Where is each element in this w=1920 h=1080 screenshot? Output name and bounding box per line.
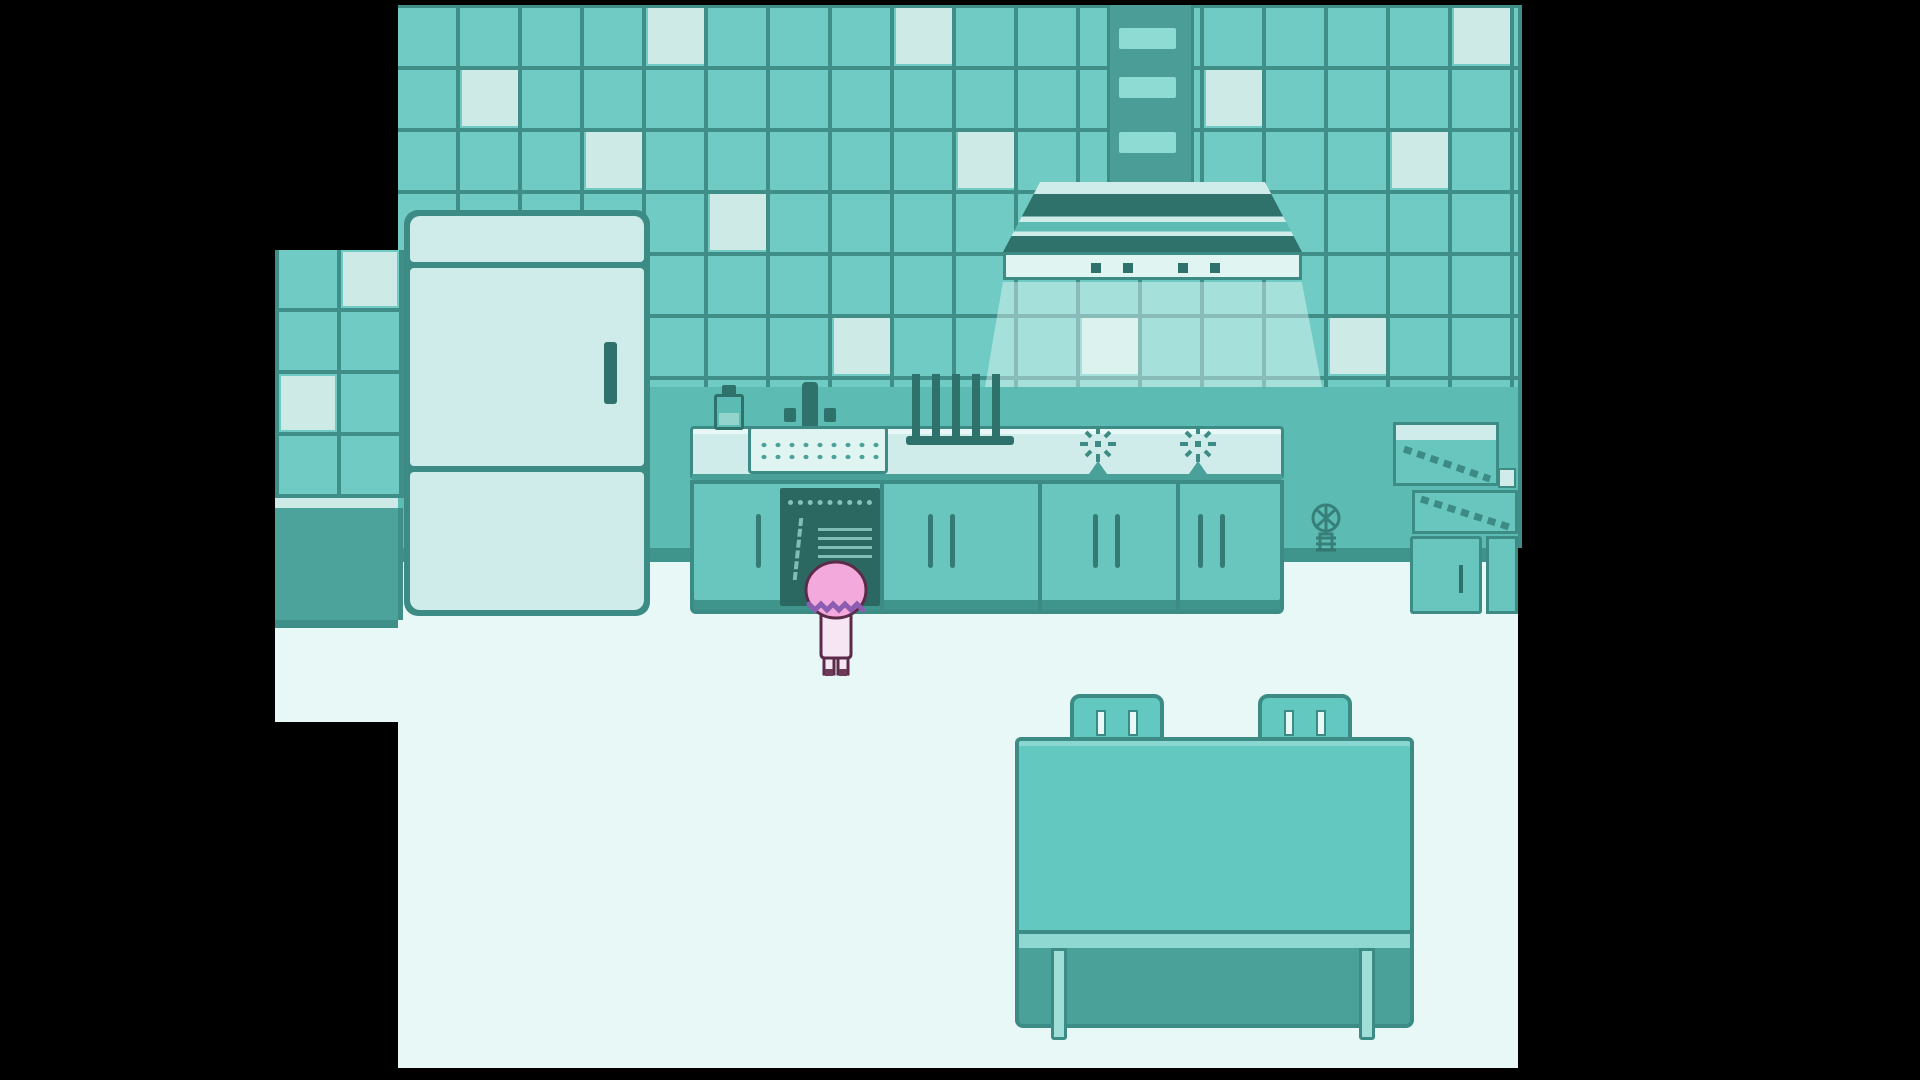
wall-tile-light [958,132,1014,188]
sink-drainboard [757,439,879,461]
cabinet-handle [1459,565,1463,593]
cabinet-handle [1198,514,1203,568]
wall-tile-light [343,252,397,306]
refrigerator-top [410,216,644,262]
storage-box-tab [1498,468,1516,488]
hood-button [1091,263,1101,273]
wall-tile-light [1206,70,1262,126]
table-leg [1359,948,1375,1040]
wall-tile-light [281,376,335,430]
faucet [802,382,818,430]
wall-tile-light [648,8,704,64]
cabinet-handle [756,514,761,568]
small-cabinet-cut [1486,536,1518,614]
refrigerator-handle [604,342,617,404]
cabinet-handle [1220,514,1225,568]
hair-fringe-wave [809,604,863,610]
chair-slot [1284,710,1294,736]
cabinet-door-gap [1176,484,1180,610]
chair-slot [1128,710,1138,736]
annex-floor [275,628,398,722]
storage-box-middle [1412,490,1518,534]
wall-tile-light [1392,132,1448,188]
chair-back [1070,694,1164,742]
wall-tile-light [834,318,890,374]
wall-tile-light [1454,8,1510,64]
sink [748,426,888,474]
game-viewport[interactable] [0,0,1920,1080]
box-tape-diagonal [1415,493,1515,531]
hood-button [1178,263,1188,273]
dining-table-edge [1015,934,1414,948]
faucet-handle [784,408,796,422]
annex-wall-base [275,508,403,620]
wall-ornament [1304,500,1348,558]
chair-back [1258,694,1352,742]
freezer-door [410,472,644,610]
refrigerator-door [410,268,644,466]
soap-bottle [714,394,744,430]
duct-vent [1119,28,1176,49]
annex-wall-tiles [275,250,407,498]
counter-cabinets [690,480,1284,614]
hood-button [1210,263,1220,273]
stove-burner [1178,424,1218,464]
exhaust-duct [1107,5,1194,197]
wall-tile-light [586,132,642,188]
small-cabinet [1410,536,1482,614]
chair-slot [1096,710,1106,736]
hood-light-glow [985,282,1322,387]
range-hood [1003,182,1302,252]
cabinet-handle [1093,514,1098,568]
stove-burner [1078,424,1118,464]
cabinet-door-gap [880,484,884,610]
annex-wall-edge [275,620,398,628]
dining-table-underside [1015,948,1414,1028]
wall-tile-light [710,194,766,250]
table-leg [1051,948,1067,1040]
duct-vent [1119,132,1176,153]
cabinet-handle [950,514,955,568]
cabinet-handle [1115,514,1120,568]
box-tape-diagonal [1396,425,1496,483]
refrigerator [404,210,650,616]
range-hood-panel [1003,252,1302,280]
soap-bottle-cap [722,385,736,396]
dish-rack [912,374,1008,436]
cabinet-door-gap [1038,484,1042,610]
annex-wall-trim [275,498,398,508]
dish-rack-base [906,436,1014,445]
dishwasher-plates [818,528,872,562]
burner-stand [1189,461,1207,474]
storage-box-top [1393,422,1499,486]
faucet-handle [824,408,836,422]
cabinet-handle [928,514,933,568]
wall-tile-light [462,70,518,126]
duct-vent [1119,77,1176,98]
hood-button [1123,263,1133,273]
player-character [804,560,868,680]
wall-tile-light [896,8,952,64]
dining-table [1015,737,1414,934]
chair-slot [1316,710,1326,736]
wall-tile-light [1330,318,1386,374]
soap-bottle-label [719,413,739,425]
dishwasher-cup-row [788,500,872,505]
burner-stand [1089,461,1107,474]
